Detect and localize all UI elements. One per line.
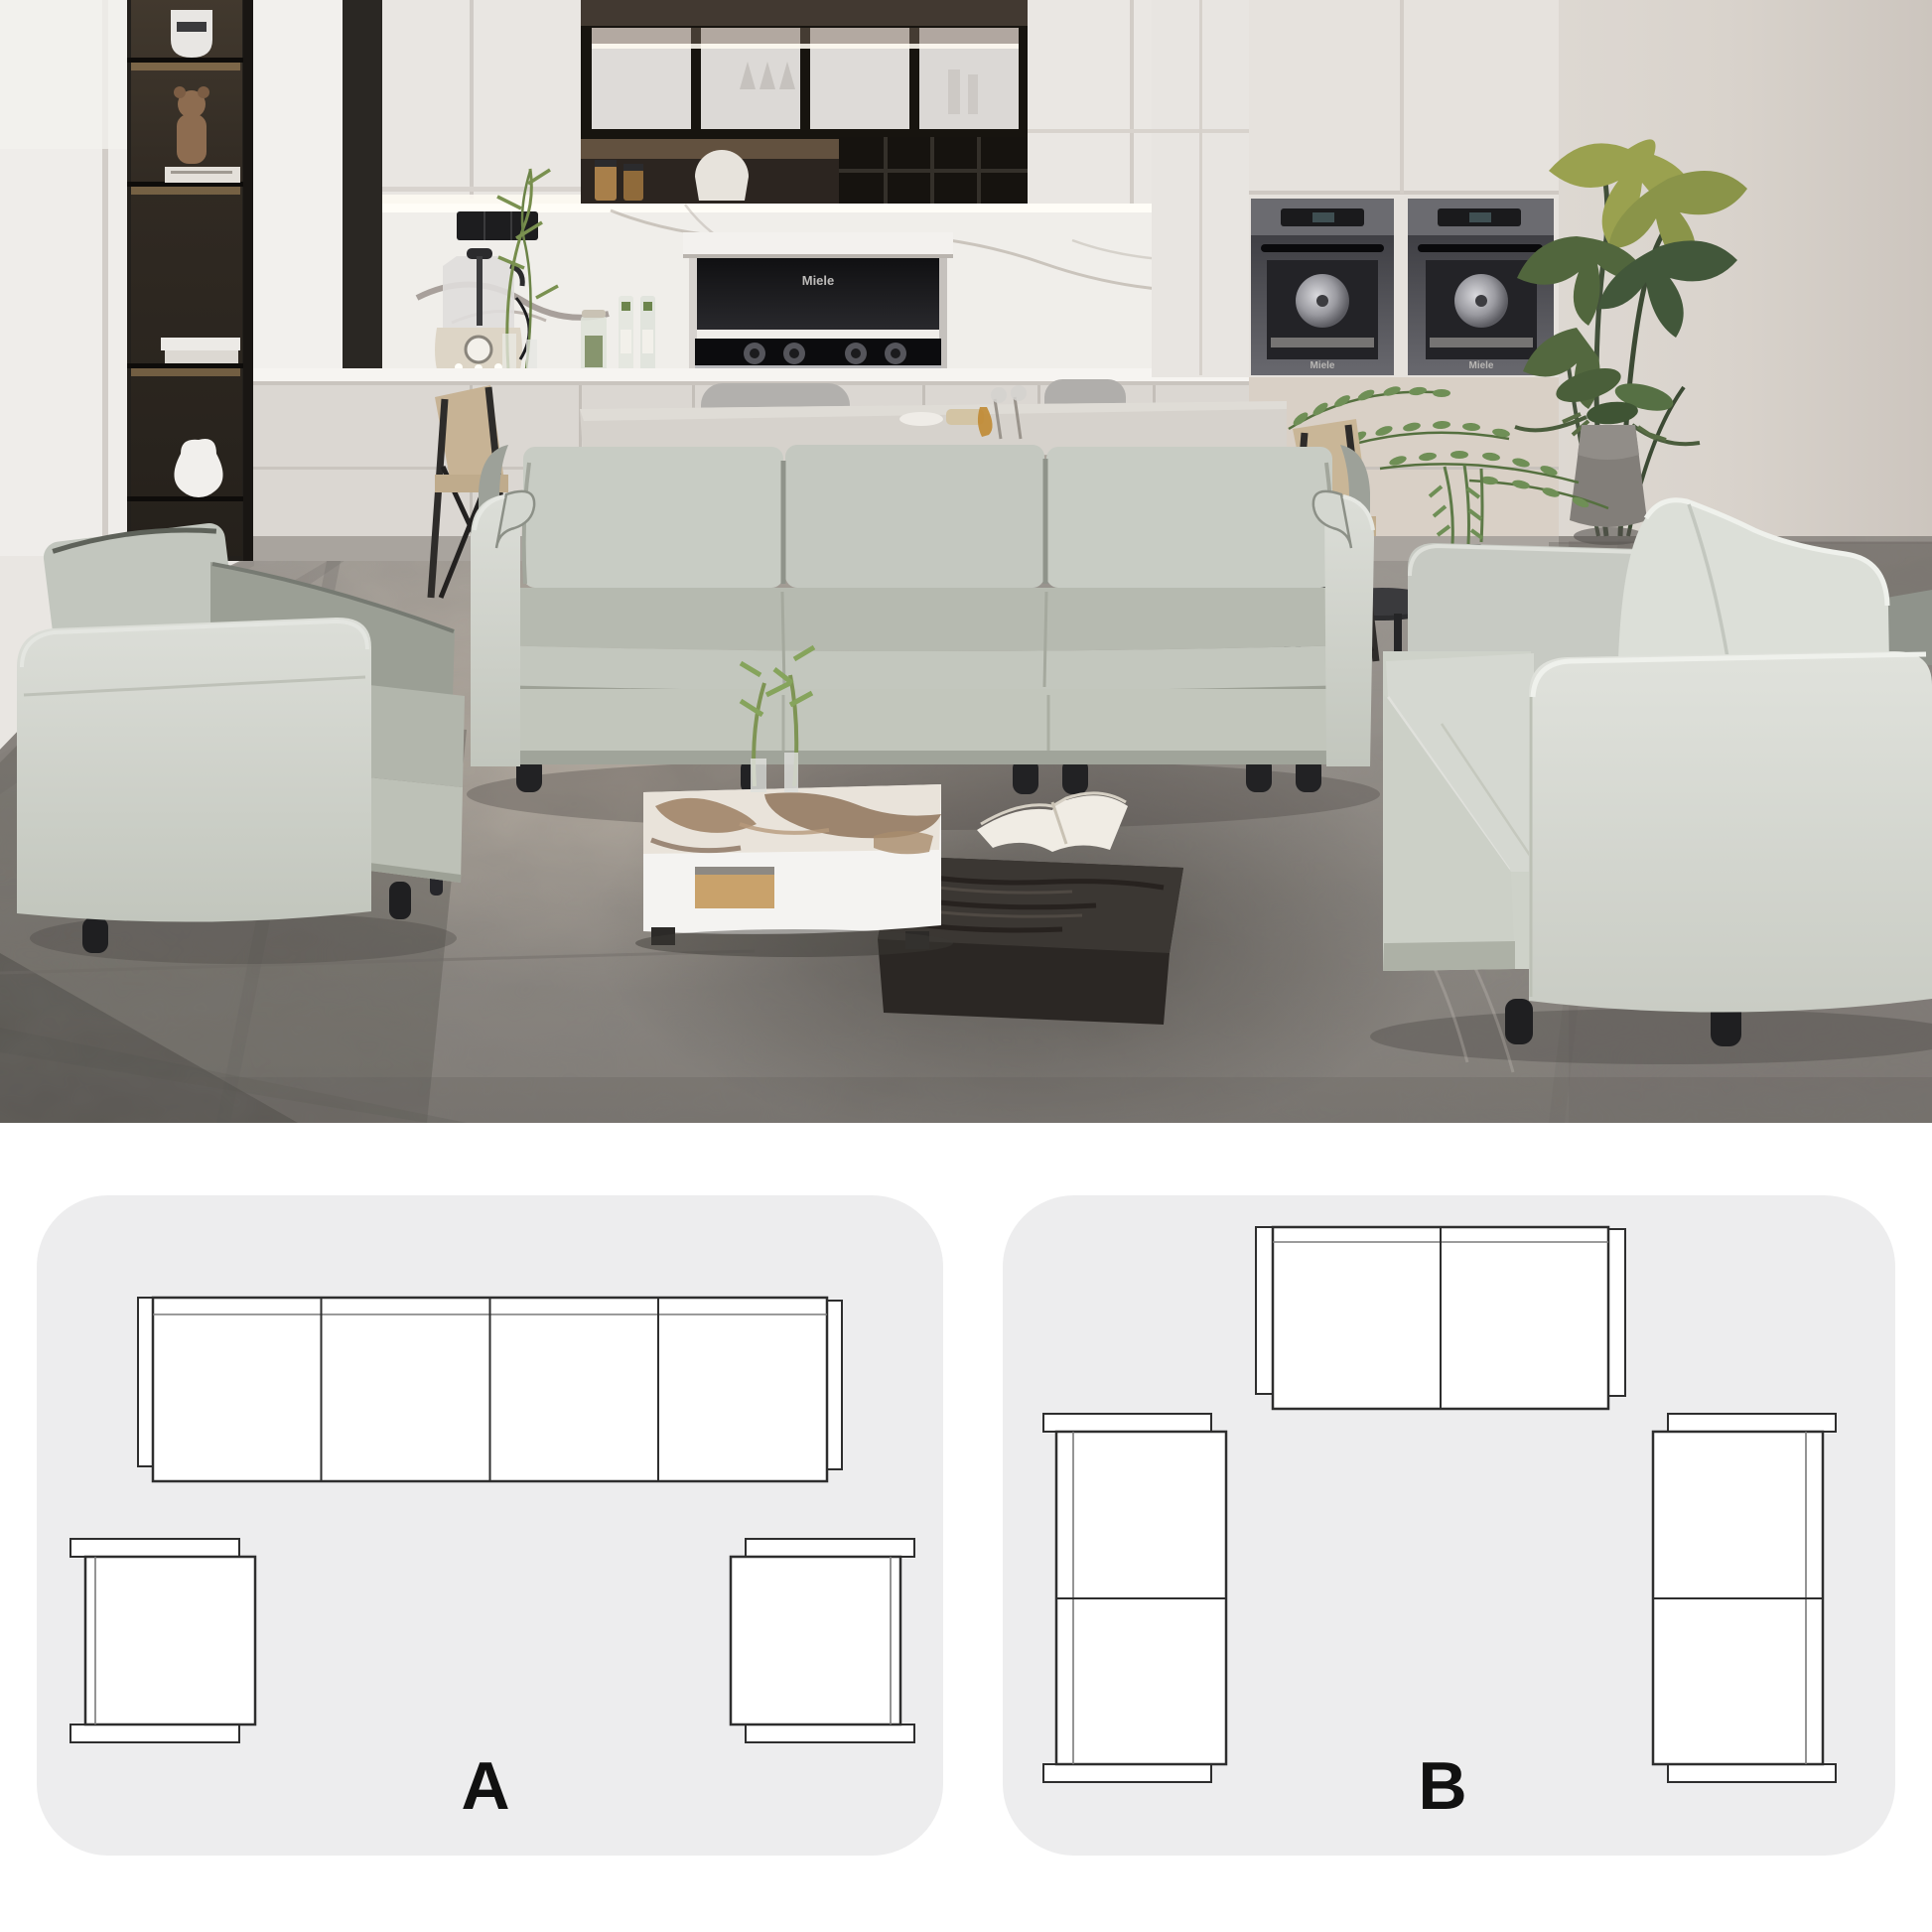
svg-text:Miele: Miele — [1468, 360, 1493, 371]
svg-text:A: A — [461, 1748, 509, 1824]
svg-text:B: B — [1418, 1748, 1466, 1824]
svg-text:Miele: Miele — [1310, 360, 1334, 371]
svg-text:Miele: Miele — [802, 273, 835, 288]
